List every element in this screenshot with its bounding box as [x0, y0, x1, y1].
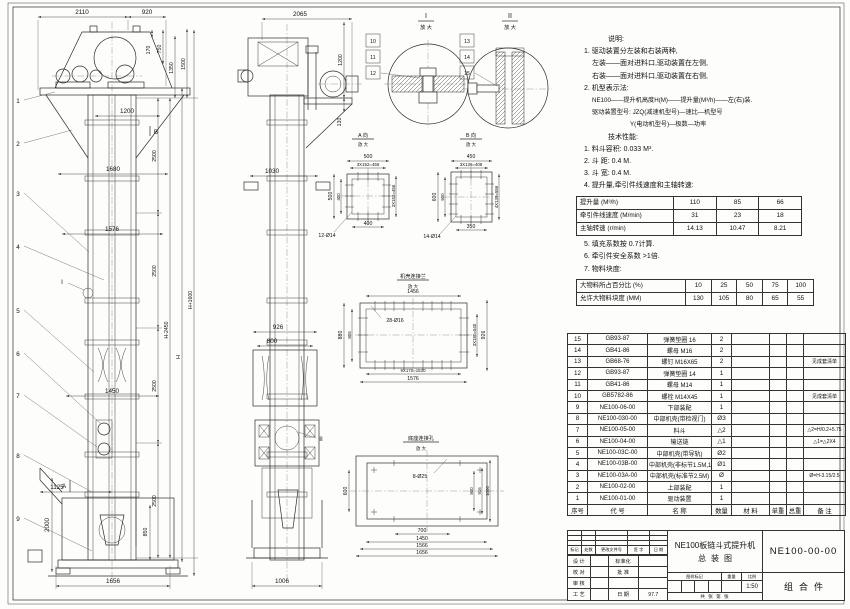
note-line: Y(电动机型号)—极数—功率: [570, 119, 844, 131]
table-cell: [787, 425, 804, 436]
table-cell: 见成套清单: [804, 356, 846, 367]
lump-size-table: 大物料所占百分比 (%)10255075100允许大物料块度 (MM)13010…: [576, 279, 814, 306]
table-row: 15GB93-87弹簧垫圈 162: [568, 334, 846, 345]
svg-text:170: 170: [146, 46, 152, 55]
table-cell: 10: [568, 390, 588, 401]
bom-header: 单重: [770, 504, 787, 515]
table-cell: Ø2: [712, 447, 732, 458]
table-cell: Ø3: [712, 413, 732, 424]
table-cell: [770, 402, 787, 413]
svg-text:A 向: A 向: [358, 131, 368, 139]
table-cell: Ø=H-3.15/2.5: [804, 470, 846, 481]
table-cell: [787, 368, 804, 379]
table-cell: [804, 368, 846, 379]
table-cell: [732, 482, 770, 493]
table-cell: [732, 413, 770, 424]
table-cell: 下部装配: [648, 402, 712, 413]
svg-text:1006: 1006: [485, 486, 490, 496]
table-cell: 97.7: [638, 589, 668, 600]
table-cell: [787, 390, 804, 401]
svg-text:1450: 1450: [105, 388, 120, 395]
table-cell: [787, 345, 804, 356]
table-cell: NE100-03A-00: [588, 470, 648, 481]
table-cell: [770, 436, 787, 447]
table-cell: NE100-02-00: [588, 482, 648, 493]
table-cell: [787, 459, 804, 470]
svg-text:1: 1: [16, 98, 20, 105]
table-cell: 130: [686, 293, 712, 306]
bom-header: 序号: [568, 504, 588, 515]
table-cell: 输送链: [648, 436, 712, 447]
table-cell: 12: [568, 368, 588, 379]
table-cell: 中部机壳(标准节2.5M): [648, 470, 712, 481]
tech-line: 1. 料斗容积: 0.033 M³.: [570, 144, 844, 156]
table-row: 1NE100-01-00驱动装置1: [568, 493, 846, 504]
drawing-sheet: I B A 2110 920 1200 1680 1576 1450 1125 …: [0, 0, 850, 609]
table-cell: NE100-03C-00: [588, 447, 648, 458]
bom-header: 数量: [712, 504, 732, 515]
svg-text:放 大: 放 大: [416, 445, 427, 452]
table-cell: 3: [568, 470, 588, 481]
svg-text:1576: 1576: [407, 376, 419, 382]
table-cell: 驱动装置: [648, 493, 712, 504]
svg-text:926: 926: [481, 331, 487, 340]
table-cell: 1: [712, 482, 732, 493]
title-block-middle: NE100板链斗式提升机 总装图 图样标记 重量 比例 1:50 共 张 第 张: [668, 531, 763, 600]
table-cell: 18: [759, 209, 802, 222]
table-cell: 日 期: [608, 589, 638, 600]
table-cell: [732, 459, 770, 470]
table-cell: [787, 493, 804, 504]
notes-heading: 说明:: [570, 34, 844, 46]
svg-text:II: II: [508, 13, 512, 20]
table-row: 提升量 (M³/h)1108566: [577, 196, 802, 209]
scale-value: 1:50: [742, 581, 762, 592]
table-cell: [770, 413, 787, 424]
table-cell: 螺栓 M14X45: [648, 390, 712, 401]
table-cell: [787, 436, 804, 447]
table-cell: 允许大物料块度 (MM): [577, 293, 686, 306]
svg-text:14: 14: [464, 55, 470, 61]
table-cell: 85: [716, 196, 759, 209]
table-cell: GB41-86: [588, 345, 648, 356]
table-cell: 主轴转速 (r/min): [577, 223, 674, 236]
svg-text:13: 13: [464, 39, 470, 45]
table-cell: 1: [568, 493, 588, 504]
svg-text:2500: 2500: [152, 150, 158, 162]
table-cell: NE100-03B-00: [588, 459, 648, 470]
notes-column: 说明: 1. 驱动装置分左装和右装两种, 左装——面对进料口,驱动装置在左侧, …: [570, 34, 844, 309]
svg-text:1656: 1656: [106, 578, 121, 585]
svg-text:11: 11: [370, 55, 375, 61]
table-cell: [804, 345, 846, 356]
note-line: NE100——提升机高度H(M)——提升量(M³/h)——左(右)装.: [570, 95, 844, 107]
table-row: 主轴转速 (r/min)14.1310.478.21: [577, 223, 802, 236]
table-cell: 5: [568, 447, 588, 458]
rev-header: 日 期: [650, 546, 667, 554]
svg-text:920: 920: [142, 9, 153, 16]
table-cell: [787, 379, 804, 390]
svg-text:1350: 1350: [169, 62, 175, 74]
title-block-revision-area: 标记 处数 更改文件号 签 字 日 期 设 计标准化校 对批 准审 核工 艺日 …: [568, 531, 668, 600]
table-cell: [770, 447, 787, 458]
table-row: 大物料所占百分比 (%)10255075100: [577, 279, 814, 292]
tech-line: 2. 斗 距: 0.4 M.: [570, 156, 844, 168]
table-cell: [608, 578, 638, 589]
table-cell: [638, 567, 668, 578]
table-cell: 设 计: [568, 556, 590, 567]
bom-header: 备 注: [804, 504, 846, 515]
section-b-label: B: [154, 129, 158, 136]
detail-ref-ii-label: II: [319, 436, 323, 443]
table-cell: 螺母 M16: [648, 345, 712, 356]
svg-text:底座连接孔: 底座连接孔: [408, 434, 435, 442]
svg-text:350: 350: [467, 224, 476, 230]
svg-text:2500: 2500: [152, 265, 158, 277]
svg-text:1200: 1200: [338, 54, 344, 66]
table-cell: 15: [568, 334, 588, 345]
svg-text:1576: 1576: [105, 226, 120, 233]
table-cell: [770, 470, 787, 481]
stamp-header: 图样标记: [668, 573, 722, 580]
bom-header: 代 号: [588, 504, 648, 515]
table-cell: 见成套清单: [804, 390, 846, 401]
table-cell: [804, 402, 846, 413]
table-cell: [732, 493, 770, 504]
svg-text:放 大: 放 大: [466, 141, 477, 148]
table-cell: [804, 447, 846, 458]
svg-text:14-Ø14: 14-Ø14: [423, 234, 440, 240]
table-cell: 批 准: [608, 567, 638, 578]
svg-text:2065: 2065: [293, 11, 308, 18]
stamp-header: 重量: [722, 573, 742, 580]
stamp-mark-boxes: [668, 581, 722, 592]
stamp-header: 比例: [742, 573, 762, 580]
svg-text:5: 5: [16, 308, 20, 315]
drawing-name: 总装图: [693, 553, 737, 564]
table-cell: [770, 482, 787, 493]
table-cell: [732, 379, 770, 390]
table-cell: 14.13: [674, 223, 717, 236]
detail-i-balloons: 10 11 12: [366, 34, 420, 79]
svg-text:2000: 2000: [44, 518, 51, 533]
svg-text:800: 800: [267, 338, 278, 345]
note-line: 1. 驱动装置分左装和右装两种,: [570, 46, 844, 58]
table-row: 10GB5782-86螺栓 M14X451见成套清单: [568, 390, 846, 401]
table-cell: 13: [568, 356, 588, 367]
table-cell: [787, 447, 804, 458]
detail-ii-balloons: 13 14 15: [460, 34, 497, 86]
table-cell: Ø: [712, 470, 732, 481]
table-cell: [804, 459, 846, 470]
table-cell: [732, 425, 770, 436]
front-balloons: 1 2 3 4 5 6 7 8 9: [16, 92, 104, 551]
table-cell: 31: [674, 209, 717, 222]
note-line: 驱动装置型号: JZQ(减速机型号)—速比—机型号: [570, 107, 844, 119]
table-cell: NE100-030-00: [588, 413, 648, 424]
svg-text:9X170=1530: 9X170=1530: [400, 368, 426, 373]
table-cell: 9: [568, 402, 588, 413]
detail-ref-label: I: [61, 279, 63, 286]
table-cell: [787, 402, 804, 413]
table-row: 2NE100-02-00上部装配1: [568, 482, 846, 493]
svg-text:1200: 1200: [120, 108, 135, 115]
table-cell: 14: [568, 345, 588, 356]
svg-text:400: 400: [336, 193, 341, 201]
svg-text:500: 500: [328, 192, 334, 201]
table-cell: [787, 413, 804, 424]
bom-header: 材 料: [732, 504, 770, 515]
table-cell: 标准化: [608, 556, 638, 567]
table-cell: 2: [712, 345, 732, 356]
table-cell: [804, 482, 846, 493]
table-cell: 55: [788, 293, 814, 306]
tech-line: 5. 填充系数按 0.7计算.: [570, 239, 844, 251]
svg-text:1656: 1656: [416, 550, 428, 556]
svg-text:放 大: 放 大: [504, 23, 516, 31]
title-block-right: NE100-00-00 组合件: [763, 531, 844, 600]
svg-text:1450: 1450: [416, 536, 428, 542]
table-row: 审 核: [568, 578, 668, 589]
note-line: 左装——面对进料口,驱动装置在左侧,: [570, 58, 844, 70]
table-row: 4NE100-03B-00中部机壳(非标节1.5M,1M)Ø1: [568, 459, 846, 470]
table-cell: [638, 578, 668, 589]
table-cell: NE100-01-00: [588, 493, 648, 504]
table-cell: 66: [759, 196, 802, 209]
part-type: 组合件: [763, 573, 844, 600]
table-cell: NE100-05-00: [588, 425, 648, 436]
tech-line: 6. 牵引件安全系数 >1倍.: [570, 251, 844, 263]
svg-text:1125: 1125: [50, 484, 64, 491]
svg-text:1030: 1030: [265, 168, 280, 175]
view-b: B 向 放 大 450 3X136=408 600 500 4X139=556 …: [423, 131, 499, 240]
table-row: 8NE100-030-00中部机壳(带检视门)Ø3: [568, 413, 846, 424]
table-row: 14GB41-86螺母 M162: [568, 345, 846, 356]
table-cell: △2=H/0.2+5.75: [804, 425, 846, 436]
table-cell: [787, 470, 804, 481]
table-cell: Ø1: [712, 459, 732, 470]
svg-text:1456: 1456: [407, 289, 419, 295]
table-cell: [732, 356, 770, 367]
detail-ii: II 放 大 13 14 15: [460, 13, 552, 128]
table-cell: 中部机壳(非标节1.5M,1M): [648, 459, 712, 470]
svg-text:3X152=456: 3X152=456: [357, 162, 380, 167]
stamp-value-row: 1:50: [668, 581, 762, 593]
table-cell: 4: [568, 459, 588, 470]
table-cell: △2: [712, 425, 732, 436]
title-block: 标记 处数 更改文件号 签 字 日 期 设 计标准化校 对批 准审 核工 艺日 …: [567, 530, 845, 601]
table-cell: 75: [762, 279, 788, 292]
table-cell: 工 艺: [568, 589, 590, 600]
table-cell: [590, 589, 608, 600]
table-cell: 7: [568, 425, 588, 436]
svg-text:600: 600: [343, 487, 349, 496]
table-row: 3NE100-03A-00中部机壳(标准节2.5M)ØØ=H-3.15/2.5: [568, 470, 846, 481]
table-cell: 螺钉 M16X65: [648, 356, 712, 367]
table-row: 12GB93-87弹簧垫圈 141: [568, 368, 846, 379]
table-cell: 1: [712, 390, 732, 401]
table-cell: 料斗: [648, 425, 712, 436]
table-cell: 110: [674, 196, 717, 209]
svg-text:3X152=456: 3X152=456: [391, 184, 396, 207]
table-cell: 审 核: [568, 578, 590, 589]
svg-text:2500: 2500: [152, 380, 158, 392]
rev-header: 签 字: [628, 546, 650, 554]
svg-text:850: 850: [143, 528, 149, 537]
table-cell: 11: [568, 379, 588, 390]
table-cell: [732, 470, 770, 481]
svg-text:1500: 1500: [181, 58, 187, 70]
rev-header: 更改文件号: [596, 546, 628, 554]
rev-header: 标记: [568, 546, 582, 554]
svg-text:B 向: B 向: [466, 131, 476, 139]
table-cell: [732, 447, 770, 458]
table-cell: [590, 578, 608, 589]
side-view: II 2065 1200 130 1030 926 800 1006: [238, 11, 362, 589]
table-cell: [770, 425, 787, 436]
table-cell: 1: [712, 402, 732, 413]
table-cell: 105: [711, 293, 737, 306]
svg-text:放 大: 放 大: [358, 141, 369, 148]
svg-text:12-Ø14: 12-Ø14: [318, 233, 335, 239]
table-cell: [787, 482, 804, 493]
table-cell: [732, 436, 770, 447]
flange-detail: 机壳连接兰 放 大 1456 28-Ø16 880 806 3X180=540 …: [338, 272, 487, 382]
table-cell: 1: [712, 379, 732, 390]
table-cell: [804, 379, 846, 390]
table-cell: 80: [737, 293, 763, 306]
table-cell: [804, 334, 846, 345]
drawing-title: NE100板链斗式提升机 总装图: [668, 531, 762, 573]
svg-text:2: 2: [16, 141, 20, 148]
table-cell: GB41-86: [588, 379, 648, 390]
svg-text:机壳连接兰: 机壳连接兰: [400, 272, 426, 280]
svg-text:10: 10: [370, 39, 376, 45]
bom-header-row: 序号 代 号 名 称 数量 材 料 单重 总重 备 注: [568, 504, 846, 515]
svg-text:600: 600: [432, 193, 438, 202]
table-cell: GB68-76: [588, 356, 648, 367]
svg-text:4: 4: [16, 244, 20, 251]
product-name: NE100板链斗式提升机: [675, 540, 755, 551]
table-row: 工 艺日 期97.7: [568, 589, 668, 600]
table-cell: [770, 334, 787, 345]
table-cell: [770, 459, 787, 470]
table-cell: 1: [712, 368, 732, 379]
svg-text:6: 6: [16, 351, 20, 358]
note-line: 2. 机型表示法:: [570, 83, 844, 95]
table-cell: 2: [712, 334, 732, 345]
svg-text:H: H: [176, 355, 182, 359]
tech-line: 4. 提升量,牵引件线速度和主轴转速:: [570, 180, 844, 192]
svg-text:H+1600: H+1600: [188, 291, 194, 309]
table-cell: △1=△2X4: [804, 436, 846, 447]
svg-text:880: 880: [338, 331, 344, 340]
tech-line: 7. 物料块度:: [570, 264, 844, 276]
table-cell: [787, 356, 804, 367]
table-cell: 弹簧垫圈 14: [648, 368, 712, 379]
table-cell: [590, 567, 608, 578]
table-row: 11GB41-86螺母 M141: [568, 379, 846, 390]
table-row: 13GB68-76螺钉 M16X652见成套清单: [568, 356, 846, 367]
bom-header: 名 称: [648, 504, 712, 515]
table-cell: 8: [568, 413, 588, 424]
table-row: 允许大物料块度 (MM)130105806555: [577, 293, 814, 306]
svg-text:4X139=556: 4X139=556: [494, 185, 499, 208]
table-cell: 8.21: [759, 223, 802, 236]
table-cell: 6: [568, 436, 588, 447]
svg-text:500: 500: [364, 154, 373, 160]
svg-text:800: 800: [469, 487, 474, 495]
signature-table: 设 计标准化校 对批 准审 核工 艺日 期97.7: [568, 555, 668, 600]
rev-header: 处数: [582, 546, 596, 554]
svg-text:700: 700: [418, 528, 427, 534]
table-cell: [770, 390, 787, 401]
table-cell: NE100-06-00: [588, 402, 648, 413]
svg-text:450: 450: [467, 154, 476, 160]
bom-header: 总重: [787, 504, 804, 515]
table-row: 校 对批 准: [568, 567, 668, 578]
svg-text:806: 806: [347, 331, 352, 339]
svg-text:916: 916: [477, 487, 482, 495]
table-cell: GB93-87: [588, 368, 648, 379]
table-cell: [770, 368, 787, 379]
table-cell: [732, 390, 770, 401]
detail-i: I 放 大 10 11 12: [366, 13, 472, 128]
flange-ticks: [358, 301, 469, 370]
svg-text:H-2450: H-2450: [164, 321, 170, 338]
svg-text:I: I: [425, 13, 427, 20]
table-cell: [732, 368, 770, 379]
table-cell: 25: [711, 279, 737, 292]
table-cell: GB93-87: [588, 334, 648, 345]
svg-text:3X136=408: 3X136=408: [460, 162, 483, 167]
weight-cell: [722, 581, 742, 592]
table-row: 6NE100-04-00输送链△1△1=△2X4: [568, 436, 846, 447]
table-row: 设 计标准化: [568, 556, 668, 567]
svg-text:28-Ø16: 28-Ø16: [386, 318, 403, 324]
svg-text:放 大: 放 大: [420, 23, 432, 31]
table-cell: NE100-04-00: [588, 436, 648, 447]
table-cell: [732, 334, 770, 345]
table-row: 5NE100-03C-00中部机壳(带导轨)Ø2: [568, 447, 846, 458]
svg-text:1006: 1006: [275, 578, 290, 585]
bom-table: 15GB93-87弹簧垫圈 16214GB41-86螺母 M16213GB68-…: [567, 333, 846, 516]
table-cell: △1: [712, 436, 732, 447]
table-cell: 中部机壳(带检视门): [648, 413, 712, 424]
table-cell: 50: [737, 279, 763, 292]
table-cell: [804, 413, 846, 424]
table-cell: 65: [762, 293, 788, 306]
table-cell: 中部机壳(带导轨): [648, 447, 712, 458]
drawing-number: NE100-00-00: [763, 531, 844, 573]
note-line: 右装——面对进料口,驱动装置在右侧,: [570, 71, 844, 83]
table-row: 9NE100-06-00下部装配1: [568, 402, 846, 413]
table-cell: 牵引件线速度 (M/min): [577, 209, 674, 222]
table-cell: 23: [716, 209, 759, 222]
table-row: 牵引件线速度 (M/min)312318: [577, 209, 802, 222]
sheet-count: 共 张 第 张: [668, 593, 762, 600]
svg-text:500: 500: [440, 193, 445, 201]
svg-text:9: 9: [16, 516, 20, 523]
table-cell: 2: [568, 482, 588, 493]
table-cell: 2: [712, 356, 732, 367]
table-cell: 螺母 M14: [648, 379, 712, 390]
svg-text:1680: 1680: [106, 166, 121, 173]
table-cell: GB5782-86: [588, 390, 648, 401]
table-cell: [770, 356, 787, 367]
svg-text:400: 400: [364, 221, 373, 227]
svg-text:926: 926: [273, 324, 284, 331]
